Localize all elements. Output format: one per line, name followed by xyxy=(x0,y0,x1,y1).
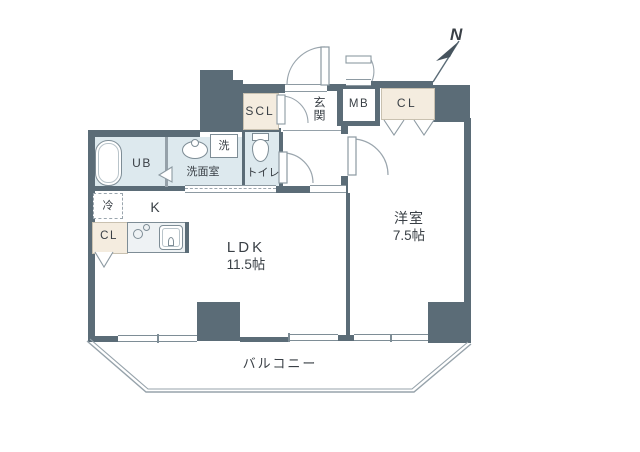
shoe-closet-label: SCL xyxy=(243,93,277,128)
hanger-icon xyxy=(95,252,113,267)
washroom-label: 洗面室 xyxy=(183,165,223,179)
hanger-icon xyxy=(384,120,404,135)
balcony-label: バルコニー xyxy=(230,356,330,371)
bath-folding-door xyxy=(159,167,172,182)
hanger-icon xyxy=(414,120,434,135)
toilet-label: トイレ xyxy=(246,166,280,180)
washer-label: 洗 xyxy=(210,134,238,158)
floor-plan: N SCL 玄関 MB CL UB 洗 洗面室 トイレ 冷 K CL LDK 1… xyxy=(0,0,640,452)
western-room-name-label: 洋室 xyxy=(377,210,441,226)
unit-bath-label: UB xyxy=(126,155,158,171)
shoe-closet-door xyxy=(277,95,308,124)
closet-ldk-label: CL xyxy=(92,222,126,252)
north-compass xyxy=(433,41,459,82)
western-room-size-label: 7.5帖 xyxy=(377,228,441,244)
entrance-door xyxy=(287,47,329,85)
meter-box-door xyxy=(346,56,374,81)
kitchen-label: K xyxy=(146,199,164,215)
meter-box-label: MB xyxy=(343,89,375,121)
north-arrowhead-icon xyxy=(436,42,458,61)
ldk-size-label: 11.5帖 xyxy=(214,257,278,273)
refrigerator-label: 冷 xyxy=(93,193,123,219)
corridor-door xyxy=(279,152,313,183)
closet-bedroom-label: CL xyxy=(381,88,433,118)
western-room-door xyxy=(348,137,388,175)
ldk-name-label: LDK xyxy=(214,239,278,256)
entrance-label: 玄関 xyxy=(313,96,325,122)
north-label: N xyxy=(450,26,462,43)
